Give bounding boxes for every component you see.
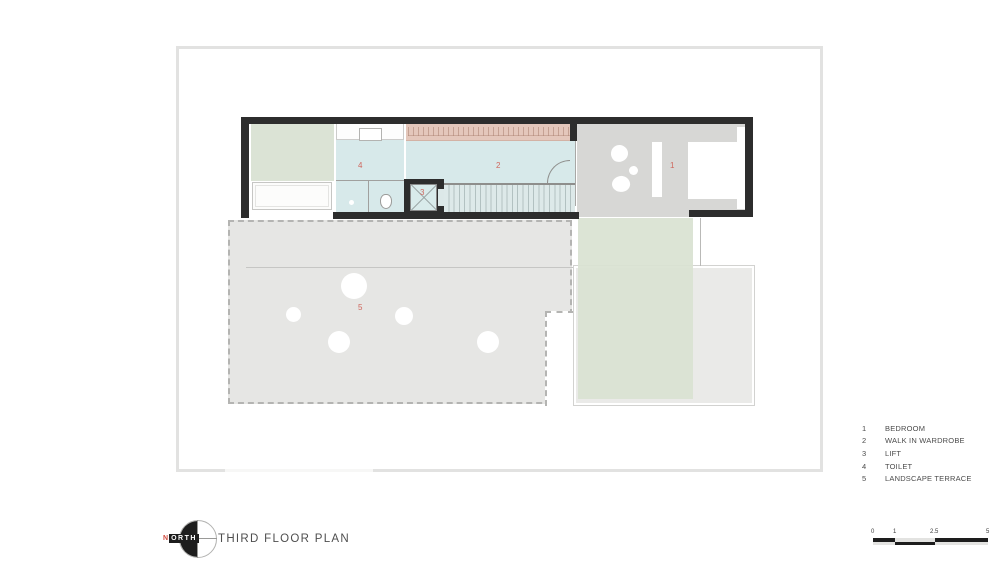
bedside-ledge bbox=[737, 127, 745, 209]
shower-drain bbox=[349, 200, 354, 205]
legend-item-number: 5 bbox=[862, 474, 885, 483]
scale-tick-label: 1 bbox=[893, 529, 896, 535]
toilet-partition-line bbox=[368, 180, 369, 212]
skylight-circle bbox=[341, 273, 367, 299]
wall-stub bbox=[570, 117, 577, 141]
headboard-partition bbox=[652, 142, 662, 197]
scale-tick-label: 5 bbox=[986, 529, 989, 535]
green-roof-area bbox=[578, 218, 693, 399]
staircase bbox=[443, 184, 575, 212]
wall-top bbox=[241, 117, 753, 124]
sheet-border-light-segment bbox=[225, 469, 373, 472]
wall-right bbox=[745, 117, 753, 217]
north-label-rest: ORTH bbox=[169, 534, 199, 543]
toilet-fixture bbox=[380, 194, 392, 209]
scale-bar-segment bbox=[873, 542, 895, 546]
green-lightwell-area bbox=[251, 124, 334, 181]
toilet-partition-line bbox=[336, 180, 404, 181]
legend-item-label: LANDSCAPE TERRACE bbox=[885, 474, 972, 483]
wall-bottom bbox=[689, 210, 753, 217]
bathtub bbox=[252, 182, 332, 210]
legend-item-number: 1 bbox=[862, 424, 885, 433]
wardrobe-cabinet-strip bbox=[406, 124, 577, 141]
skylight-circle bbox=[328, 331, 350, 353]
legend-item: 1 BEDROOM bbox=[862, 422, 972, 435]
room-number-bedroom: 1 bbox=[670, 162, 674, 170]
scale-bar-segment bbox=[935, 542, 988, 546]
wall-bottom bbox=[333, 212, 579, 219]
skylight-circle bbox=[477, 331, 499, 353]
legend-item: 4 TOILET bbox=[862, 460, 972, 473]
floor-plan-sheet: 1 2 3 4 5 1 BEDROOM 2 WALK IN WARDROBE 3… bbox=[0, 0, 1000, 565]
legend-item-label: TOILET bbox=[885, 462, 912, 471]
room-number-toilet: 4 bbox=[358, 162, 362, 170]
room-number-terrace: 5 bbox=[358, 304, 362, 312]
page-title: THIRD FLOOR PLAN bbox=[218, 533, 350, 545]
legend-item: 5 LANDSCAPE TERRACE bbox=[862, 472, 972, 485]
north-label: N ORTH bbox=[163, 534, 199, 543]
legend-item: 3 LIFT bbox=[862, 447, 972, 460]
wardrobe-hatch bbox=[408, 127, 575, 136]
bedroom-partition-line bbox=[575, 140, 576, 206]
legend-item-label: LIFT bbox=[885, 449, 901, 458]
bed bbox=[688, 142, 738, 199]
skylight-circle bbox=[395, 307, 413, 325]
scale-tick-label: 2.5 bbox=[930, 529, 938, 535]
wash-basin bbox=[359, 128, 382, 141]
wall-left bbox=[241, 117, 249, 218]
lift-door-opening bbox=[438, 189, 444, 206]
legend-item-number: 3 bbox=[862, 449, 885, 458]
legend: 1 BEDROOM 2 WALK IN WARDROBE 3 LIFT 4 TO… bbox=[862, 422, 972, 485]
room-number-lift: 3 bbox=[420, 189, 424, 197]
legend-item: 2 WALK IN WARDROBE bbox=[862, 435, 972, 448]
room-number-wardrobe: 2 bbox=[496, 162, 500, 170]
legend-item-number: 2 bbox=[862, 436, 885, 445]
bathtub-inner-line bbox=[255, 185, 329, 207]
scale-bar-segment bbox=[895, 542, 935, 546]
side-table-circle bbox=[629, 166, 638, 175]
skylight-circle bbox=[286, 307, 301, 322]
north-label-first-letter: N bbox=[163, 535, 168, 542]
legend-item-label: WALK IN WARDROBE bbox=[885, 436, 965, 445]
legend-item-label: BEDROOM bbox=[885, 424, 925, 433]
roof-edge-line bbox=[700, 218, 701, 266]
terrace-notch-cutout bbox=[545, 311, 574, 406]
staircase-edge-line bbox=[441, 183, 575, 185]
legend-item-number: 4 bbox=[862, 462, 885, 471]
scale-tick-label: 0 bbox=[871, 529, 874, 535]
